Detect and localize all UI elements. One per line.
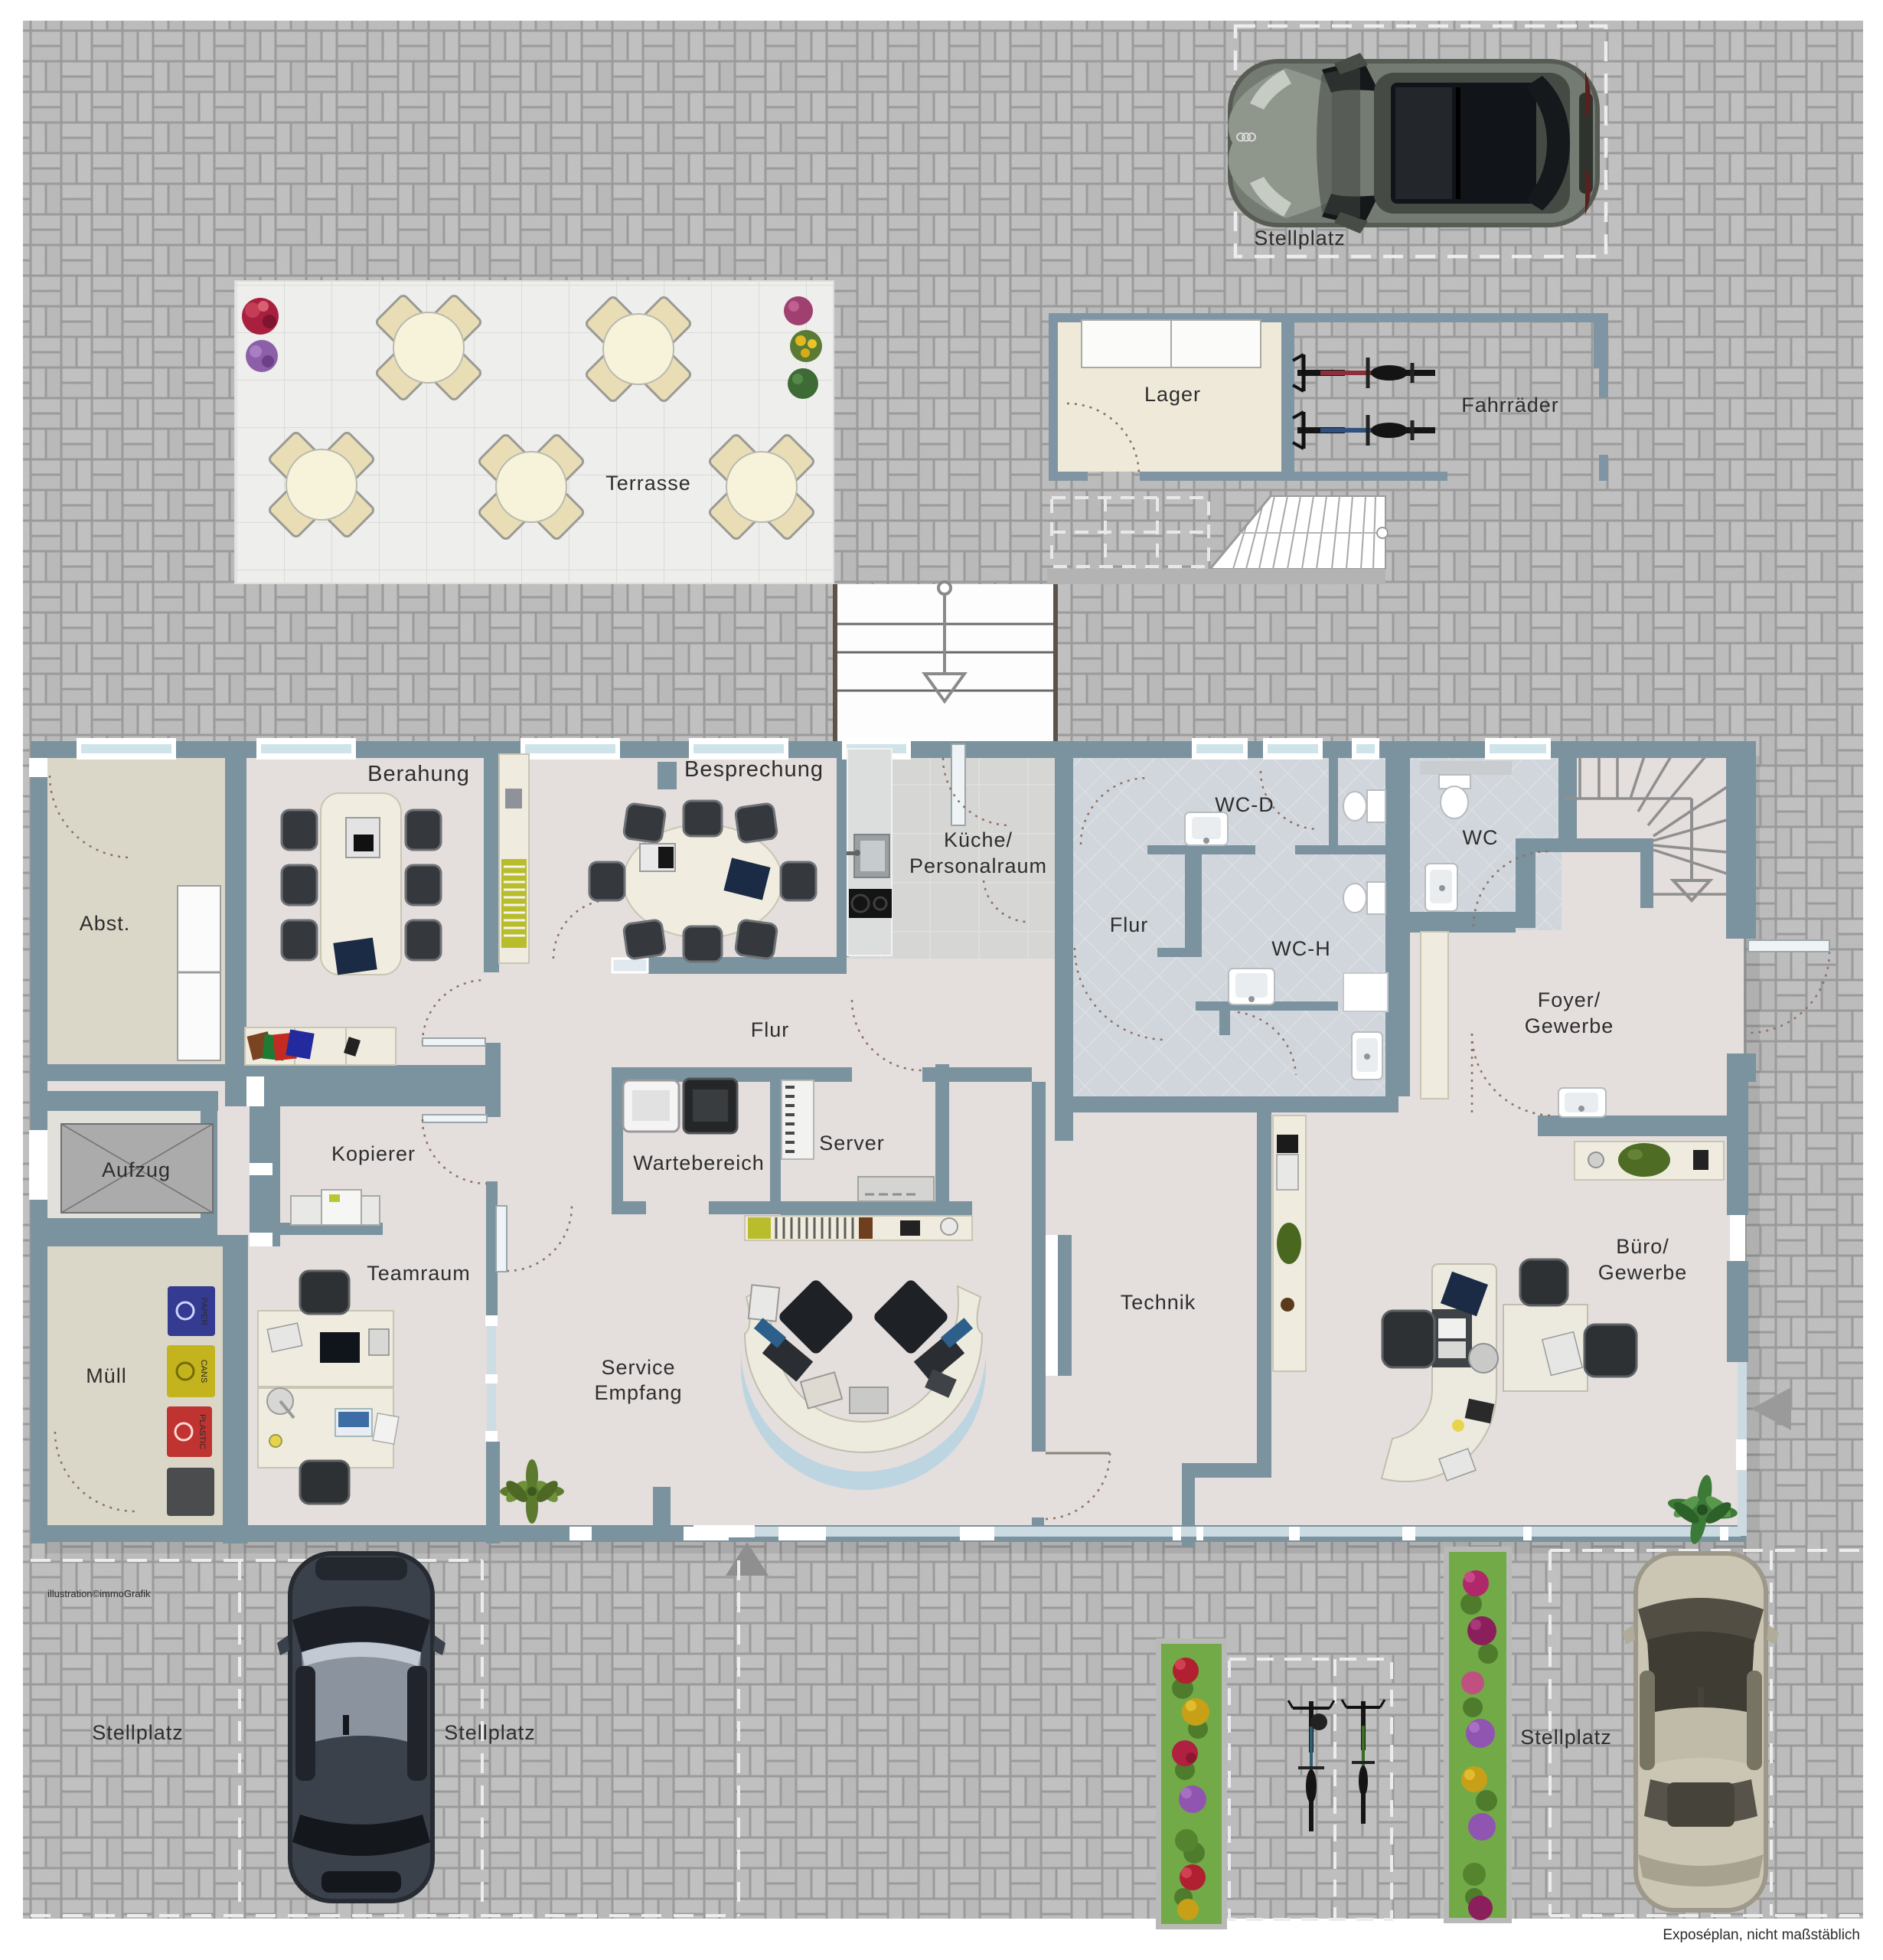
svg-text:Flur: Flur — [751, 1018, 790, 1041]
svg-text:Technik: Technik — [1121, 1291, 1196, 1314]
svg-text:Kopierer: Kopierer — [331, 1142, 416, 1165]
svg-text:Service: Service — [601, 1356, 675, 1379]
svg-text:CANS: CANS — [199, 1360, 208, 1383]
svg-text:Personalraum: Personalraum — [909, 854, 1047, 877]
svg-text:Flur: Flur — [1110, 913, 1149, 936]
svg-text:WC-H: WC-H — [1271, 937, 1330, 960]
svg-text:Terrasse: Terrasse — [605, 472, 691, 495]
svg-text:Server: Server — [819, 1132, 885, 1155]
svg-text:Abst.: Abst. — [80, 912, 131, 935]
svg-text:WC-D: WC-D — [1215, 793, 1274, 816]
svg-text:Gewerbe: Gewerbe — [1598, 1261, 1688, 1284]
svg-text:Stellplatz: Stellplatz — [92, 1721, 184, 1744]
svg-text:Berahung: Berahung — [367, 762, 470, 786]
svg-text:WC: WC — [1463, 826, 1499, 849]
svg-text:Lager: Lager — [1144, 383, 1201, 406]
svg-text:PLASTIC: PLASTIC — [197, 1414, 207, 1449]
svg-text:Exposéplan, nicht maßstäblich: Exposéplan, nicht maßstäblich — [1663, 1927, 1860, 1943]
svg-text:Foyer/: Foyer/ — [1538, 988, 1601, 1011]
svg-text:Büro/: Büro/ — [1616, 1235, 1669, 1258]
svg-text:Stellplatz: Stellplatz — [1254, 227, 1346, 250]
svg-text:PAPER: PAPER — [199, 1298, 208, 1326]
svg-text:Aufzug: Aufzug — [102, 1158, 171, 1181]
svg-text:Empfang: Empfang — [594, 1381, 682, 1404]
svg-text:Gewerbe: Gewerbe — [1525, 1014, 1614, 1037]
svg-text:Stellplatz: Stellplatz — [444, 1721, 536, 1744]
svg-text:Fahrräder: Fahrräder — [1461, 394, 1559, 416]
svg-text:Küche/: Küche/ — [944, 828, 1013, 851]
svg-text:illustration©immoGrafik: illustration©immoGrafik — [47, 1588, 151, 1599]
svg-text:Besprechung: Besprechung — [684, 757, 824, 782]
svg-text:Stellplatz: Stellplatz — [1520, 1726, 1612, 1749]
svg-text:Müll: Müll — [86, 1364, 127, 1387]
svg-text:Teamraum: Teamraum — [367, 1262, 471, 1285]
svg-text:Wartebereich: Wartebereich — [633, 1151, 765, 1174]
